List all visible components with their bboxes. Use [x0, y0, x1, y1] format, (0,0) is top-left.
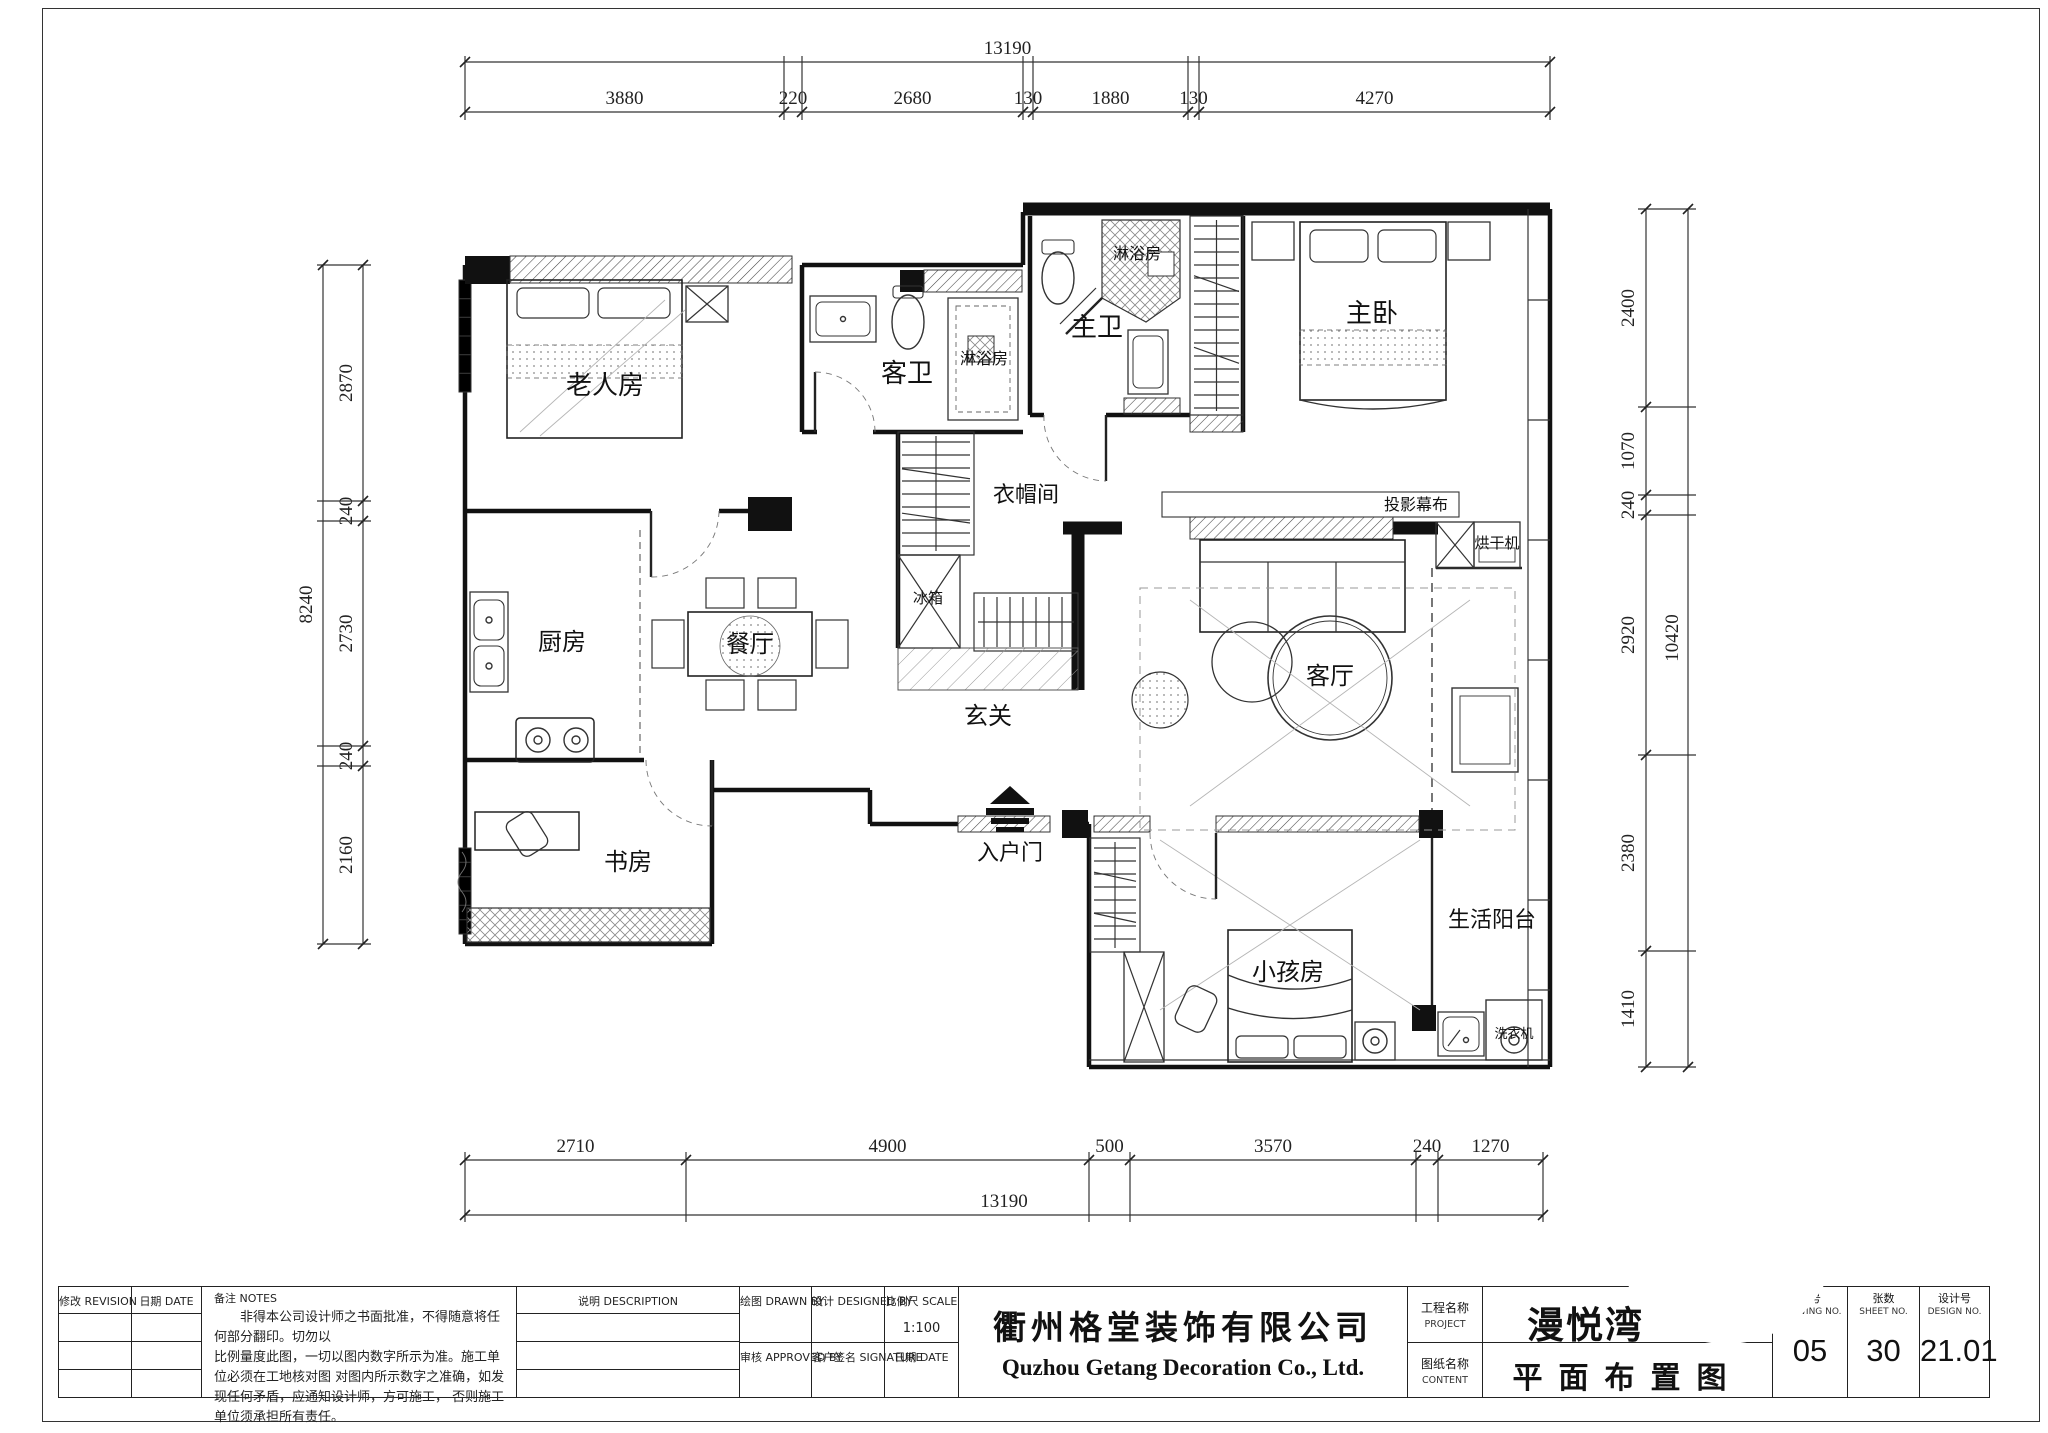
sheet-no-label: 张数 SHEET NO. — [1848, 1287, 1919, 1319]
scale-value: 1:100 — [885, 1321, 958, 1336]
svg-text:1880: 1880 — [1092, 88, 1130, 109]
svg-text:240: 240 — [1618, 491, 1639, 520]
description-header: 说明 DESCRIPTION — [517, 1287, 739, 1309]
notes-cell: 备注 NOTES 非得本公司设计师之书面批准，不得随意将任何部分翻印。切勿以 比… — [202, 1287, 517, 1397]
drawing-sheet: 3880220268013018801304270131902710490050… — [0, 0, 2048, 1433]
project-label: 工程名称 PROJECT — [1408, 1287, 1482, 1342]
date2-label: 日期 DATE — [885, 1343, 958, 1365]
svg-text:2920: 2920 — [1618, 616, 1639, 654]
svg-text:2160: 2160 — [336, 836, 357, 874]
svg-text:10420: 10420 — [1662, 614, 1683, 662]
svg-text:500: 500 — [1095, 1136, 1124, 1157]
revision-column: 修改 REVISION — [59, 1287, 132, 1397]
company-cell: 衢州格堂装饰有限公司 Quzhou Getang Decoration Co.,… — [959, 1287, 1408, 1397]
room-label-fridge: 冰箱 — [913, 589, 943, 607]
drawn-approved-column: 绘图 DRAWN BY 审核 APPROVED BY — [740, 1287, 812, 1397]
room-label-master-bedroom: 主卧 — [1346, 299, 1398, 329]
room-label-guest-shower: 淋浴房 — [960, 349, 1008, 368]
room-label-service-balcony: 生活阳台 — [1448, 908, 1536, 933]
furniture-layer — [458, 216, 1542, 1062]
svg-text:13190: 13190 — [980, 1191, 1028, 1212]
company-name-en: Quzhou Getang Decoration Co., Ltd. — [959, 1355, 1407, 1381]
sheet-no-value: 30 — [1848, 1333, 1919, 1369]
content-label: 图纸名称 CONTENT — [1408, 1343, 1482, 1398]
svg-text:1270: 1270 — [1472, 1136, 1510, 1157]
watermark-blob — [1615, 1122, 1837, 1344]
room-label-entry-door: 入户门 — [977, 841, 1043, 866]
svg-text:2730: 2730 — [336, 615, 357, 653]
room-label-master-bath: 主卫 — [1071, 313, 1123, 343]
svg-text:2710: 2710 — [557, 1136, 595, 1157]
room-label-foyer: 玄关 — [964, 702, 1012, 730]
date-header: 日期 DATE — [132, 1287, 201, 1309]
designed-by-label: 设计 DESIGNED BY — [812, 1287, 884, 1309]
design-no-cell: 设计号 DESIGN NO. 21.01 — [1920, 1287, 1989, 1397]
svg-text:13190: 13190 — [984, 38, 1032, 59]
svg-text:3880: 3880 — [606, 88, 644, 109]
room-label-cloakroom: 衣帽间 — [993, 483, 1059, 508]
svg-text:1070: 1070 — [1618, 432, 1639, 470]
svg-text:2870: 2870 — [336, 364, 357, 402]
room-label-projection-screen: 投影幕布 — [1384, 495, 1448, 514]
svg-text:1410: 1410 — [1618, 990, 1639, 1028]
room-label-master-shower: 淋浴房 — [1113, 244, 1161, 263]
svg-text:4900: 4900 — [869, 1136, 907, 1157]
room-label-elderly-room: 老人房 — [566, 371, 644, 401]
notes-header: 备注 NOTES — [202, 1287, 516, 1306]
svg-text:2380: 2380 — [1618, 834, 1639, 872]
drawing-title: 平面布置图 — [1483, 1343, 1772, 1397]
svg-text:240: 240 — [336, 742, 357, 771]
signature-label: 客户签名 SIGNATURE — [812, 1343, 884, 1365]
project-content-label-column: 工程名称 PROJECT 图纸名称 CONTENT — [1408, 1287, 1483, 1397]
room-label-study: 书房 — [604, 848, 652, 876]
description-column: 说明 DESCRIPTION — [517, 1287, 740, 1397]
room-label-kitchen: 厨房 — [538, 628, 586, 656]
svg-text:2680: 2680 — [894, 88, 932, 109]
room-label-guest-bath: 客卫 — [881, 359, 933, 389]
svg-text:240: 240 — [1413, 1136, 1442, 1157]
room-label-dining-room: 餐厅 — [726, 630, 774, 658]
svg-text:4270: 4270 — [1356, 88, 1394, 109]
scale-label: 比例尺 SCALE — [885, 1287, 958, 1309]
scale-date-column: 比例尺 SCALE 1:100 日期 DATE — [885, 1287, 959, 1397]
design-no-value: 21.01 — [1920, 1333, 1989, 1369]
svg-text:130: 130 — [1014, 88, 1043, 109]
svg-text:2400: 2400 — [1618, 289, 1639, 327]
svg-text:8240: 8240 — [296, 586, 317, 624]
room-label-living-room: 客厅 — [1306, 662, 1354, 690]
notes-text: 非得本公司设计师之书面批准，不得随意将任何部分翻印。切勿以 比例量度此图，一切以… — [202, 1306, 516, 1428]
svg-text:220: 220 — [779, 88, 808, 109]
svg-text:3570: 3570 — [1254, 1136, 1292, 1157]
approved-by-label: 审核 APPROVED BY — [740, 1343, 811, 1365]
revision-header: 修改 REVISION — [59, 1287, 131, 1309]
designed-signature-column: 设计 DESIGNED BY 客户签名 SIGNATURE — [812, 1287, 885, 1397]
room-label-dryer: 烘干机 — [1474, 534, 1519, 552]
room-label-washing-machine: 洗衣机 — [1494, 1026, 1533, 1042]
date-column: 日期 DATE — [132, 1287, 202, 1397]
room-label-kids-room: 小孩房 — [1252, 958, 1324, 986]
drawn-by-label: 绘图 DRAWN BY — [740, 1287, 811, 1309]
svg-text:130: 130 — [1179, 88, 1208, 109]
drawing-no-value: 05 — [1773, 1333, 1847, 1369]
sheet-no-cell: 张数 SHEET NO. 30 — [1848, 1287, 1920, 1397]
company-name-cn: 衢州格堂装饰有限公司 — [959, 1301, 1407, 1349]
svg-text:240: 240 — [336, 497, 357, 526]
design-no-label: 设计号 DESIGN NO. — [1920, 1287, 1989, 1319]
